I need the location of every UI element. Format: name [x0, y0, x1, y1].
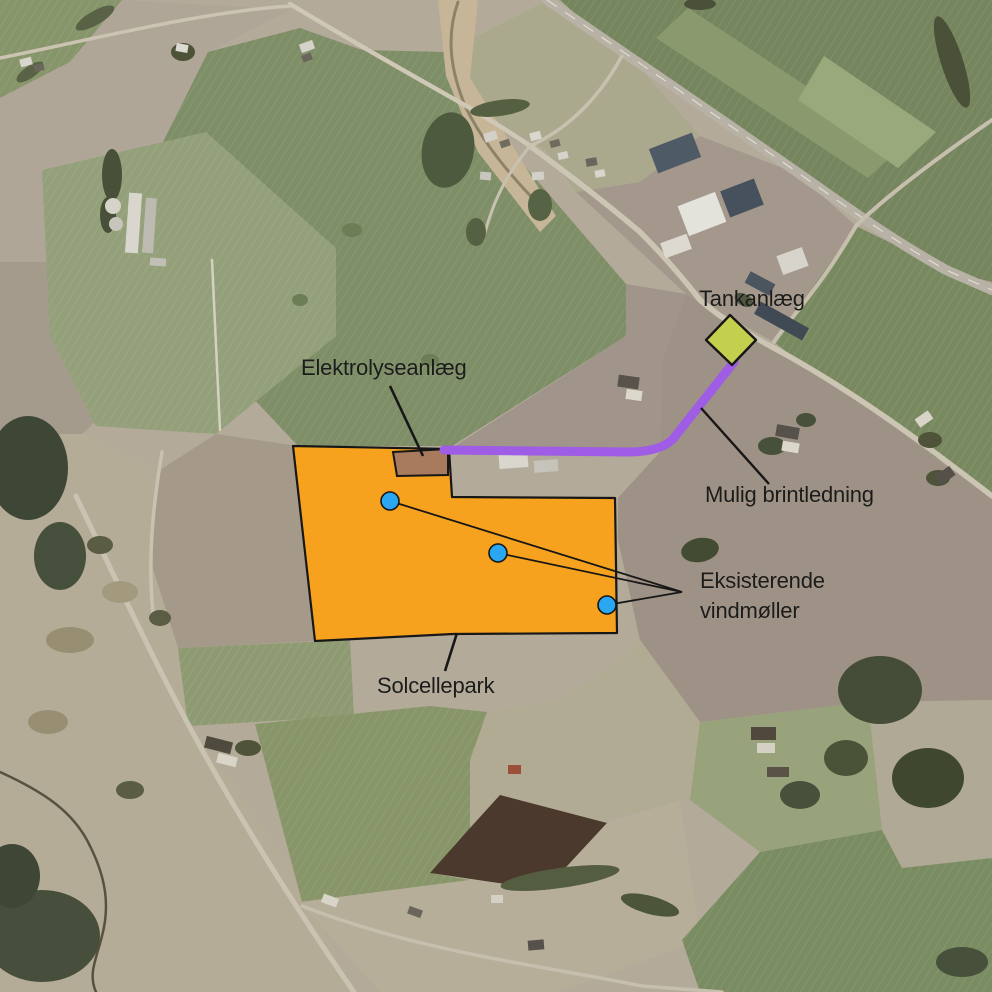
wind-turbine-marker-1 — [381, 492, 399, 510]
wood-farm-e-trees-1 — [758, 437, 786, 455]
wood-village-lane-trees — [466, 218, 486, 246]
building-farm-bc-2 — [757, 743, 775, 753]
building-bottom-farm-2 — [491, 895, 503, 903]
label-solcellepark: Solcellepark — [377, 671, 494, 701]
wood-stream-trees — [528, 189, 552, 221]
building-farm-bc-3 — [767, 767, 789, 777]
wood-heath-dark-3 — [116, 781, 144, 799]
building-farm-nw-tank-1 — [105, 198, 121, 214]
wood-heath-light-3 — [28, 710, 68, 734]
building-village-house-9 — [532, 171, 545, 180]
label-elektrolyseanlaeg: Elektrolyseanlæg — [301, 353, 467, 383]
field-left-plough-mid — [150, 434, 315, 648]
label-tankanlaeg: Tankanlæg — [699, 284, 805, 314]
wood-farm-e-trees-2 — [796, 413, 816, 427]
label-mulig-brintledning: Mulig brintledning — [705, 480, 874, 510]
wood-farm-sw2-trees — [235, 740, 261, 756]
wood-band-patch-1 — [342, 223, 362, 237]
wood-band-patch-2 — [292, 294, 308, 306]
wind-turbine-marker-3 — [598, 596, 616, 614]
wood-mid-wood-2 — [892, 748, 964, 808]
building-village-house-8 — [480, 172, 492, 181]
wood-heath-light-1 — [46, 627, 94, 653]
field-stripes-b-green1 — [178, 640, 354, 726]
label-eksisterende-vindmoeller: Eksisterende vindmøller — [700, 566, 825, 626]
map-stage: Tankanlæg Elektrolyseanlæg Mulig brintle… — [0, 0, 992, 992]
building-solar-site-house-1 — [499, 453, 529, 469]
wood-mid-wood-1 — [838, 656, 922, 724]
building-bottom-farm-1 — [528, 939, 545, 950]
wood-heath-light-2 — [102, 581, 138, 603]
wood-farm-bc-trees — [780, 781, 820, 809]
wind-turbine-marker-2 — [489, 544, 507, 562]
wood-bog-left-2 — [34, 522, 86, 590]
wood-heath-dark-1 — [87, 536, 113, 554]
wood-heath-dark-2 — [149, 610, 171, 626]
building-farm-nw-shed — [150, 257, 167, 266]
building-red-roof-house — [508, 765, 521, 774]
wood-se-trees — [936, 947, 988, 977]
wood-farm-tree-column-1 — [102, 149, 122, 201]
wood-mid-wood-3 — [824, 740, 868, 776]
wood-right-farm-trees-1 — [918, 432, 942, 448]
building-farm-nw-tank-2 — [109, 217, 123, 231]
building-farm-bc-1 — [751, 727, 776, 740]
building-solar-site-house-2 — [534, 459, 559, 473]
